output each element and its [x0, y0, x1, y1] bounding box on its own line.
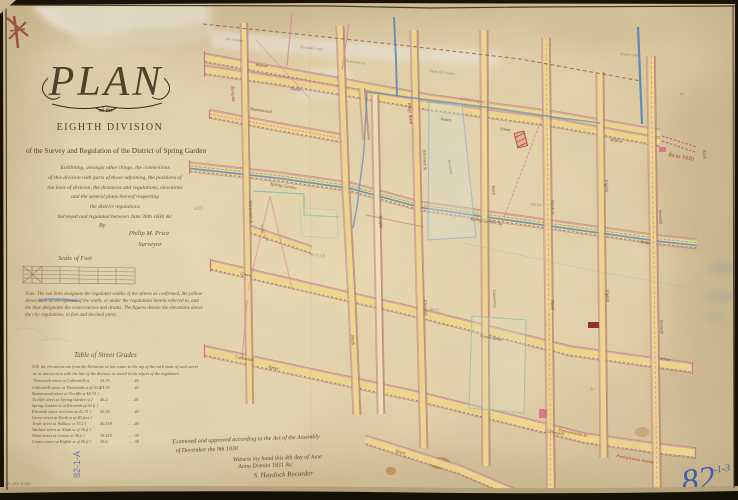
svg-text:51.35: 51.35 [100, 385, 111, 390]
svg-text:the city regulations, in feet: the city regulations, in feet and decima… [25, 313, 117, 318]
svg-text:x13: x13 [193, 206, 203, 212]
svg-text:Twelfth street at Spring Garde: Twelfth street at Spring Garden st } [32, 397, 93, 402]
svg-text:38.415: 38.415 [100, 433, 113, 438]
svg-text:Philip M. Price: Philip M. Price [128, 230, 169, 237]
svg-text:-1-3: -1-3 [713, 463, 731, 476]
svg-text:Wallace street at Ninth st of: Wallace street at Ninth st of 50 ft } [32, 427, 91, 432]
svg-text:the district regulations: the district regulations [90, 204, 140, 210]
svg-text:the blue designates the waterc: the blue designates the watercourses and… [25, 306, 204, 311]
svg-text:. . . 40: . . . 40 [128, 421, 140, 426]
svg-text:46.2: 46.2 [100, 397, 108, 402]
svg-text:Table of Street Grades: Table of Street Grades [74, 351, 137, 359]
svg-text:Note. The red lines designate: Note. The red lines designate the regula… [24, 292, 203, 297]
svg-text:ph. div. 8 Spr: ph. div. 8 Spr [4, 482, 31, 487]
svg-text:. . . 38: . . . 38 [128, 439, 140, 444]
svg-text:By: By [99, 223, 106, 229]
svg-text:Coates street at Eighth st of: Coates street at Eighth st of 50 ft } [32, 439, 92, 444]
svg-text:43.20: 43.20 [100, 409, 111, 414]
svg-text:. . . 39: . . . 39 [128, 433, 140, 438]
svg-text:Scale of Feet: Scale of Feet [58, 255, 92, 262]
svg-text:Eleventh street at Green st 41: Eleventh street at Green st 41.75 } [31, 409, 91, 414]
svg-text:54.76: 54.76 [100, 378, 111, 383]
svg-text:. . . 41: . . . 41 [128, 397, 139, 402]
svg-text:Buttonwood street at Twelfth s: Buttonwood street at Twelfth st 48.70 } [32, 391, 99, 396]
svg-text:Callowhill street at Thirteent: Callowhill street at Thirteenth st of 30… [32, 385, 104, 390]
svg-text:and the several plans thereof: and the several plans thereof respecting [71, 193, 159, 200]
svg-text:EIGHTH DIVISION: EIGHTH DIVISION [57, 122, 164, 133]
svg-text:Exhibiting, amongst other thin: Exhibiting, amongst other things, the co… [59, 165, 169, 171]
svg-text:. . . 40: . . . 40 [128, 409, 140, 414]
svg-text:of this division with parts of: of this division with parts of those adj… [48, 174, 183, 181]
svg-text:Spring Garden st at Eleventh o: Spring Garden st at Eleventh of 60 ft } [32, 403, 98, 408]
svg-text:. . . 42: . . . 42 [128, 385, 140, 390]
svg-text:at its intersection with the l: at its intersection with the line of the… [33, 371, 179, 376]
svg-text:Tenth street at Wallace st 39.: Tenth street at Wallace st 39.2 } [32, 421, 87, 426]
svg-text:Thirteenth street at Callowhil: Thirteenth street at Callowhill st [33, 378, 90, 383]
svg-text:Surveyed and regulated between: Surveyed and regulated between June 30th… [58, 214, 173, 220]
svg-text:Surveyor: Surveyor [138, 241, 162, 248]
svg-text:N.B. the elevations are from t: N.B. the elevations are from the Delawar… [31, 364, 199, 369]
svg-text:40.318: 40.318 [100, 421, 113, 426]
svg-text:of the Survey and Regulation o: of the Survey and Regulation of the Dist… [26, 146, 207, 155]
svg-text:PLAN: PLAN [48, 59, 164, 105]
svg-text:the lines of division, the dis: the lines of division, the distances and… [47, 184, 182, 191]
svg-text:. . . 46: . . . 46 [128, 378, 140, 383]
svg-text:35.6: 35.6 [100, 439, 108, 444]
svg-text:of the: of the [99, 107, 113, 114]
svg-text:Green street at Tenth st of 40: Green street at Tenth st of 40 feet } [32, 415, 92, 420]
svg-text:82-1-A: 82-1-A [72, 451, 82, 478]
svg-text:Ninth street at Coates st 36.2: Ninth street at Coates st 36.2 } [31, 433, 85, 438]
